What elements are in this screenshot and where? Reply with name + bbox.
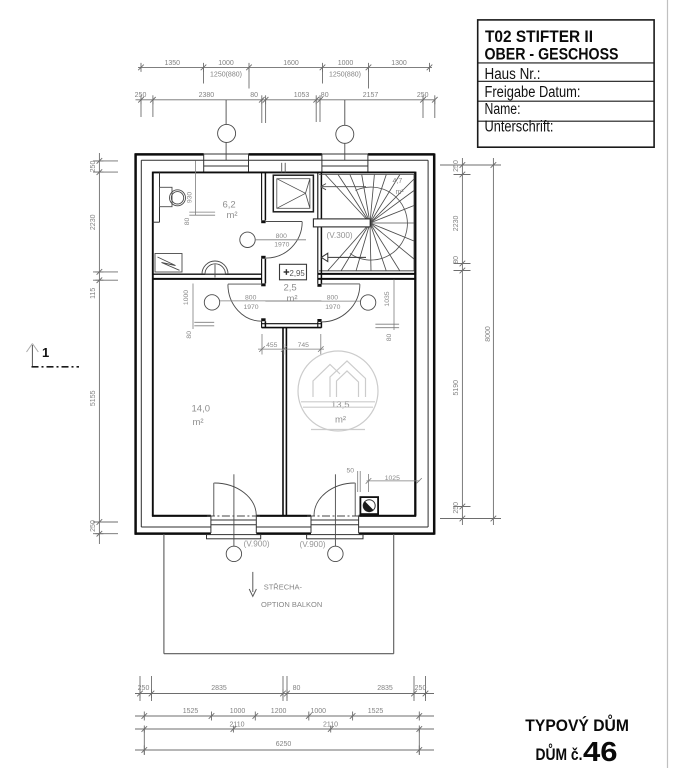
svg-text:1600: 1600 bbox=[283, 60, 299, 67]
svg-text:(V.900): (V.900) bbox=[244, 540, 270, 549]
svg-text:80: 80 bbox=[184, 218, 191, 226]
svg-text:1: 1 bbox=[42, 345, 49, 360]
svg-text:OPTION BALKON: OPTION BALKON bbox=[261, 600, 322, 609]
svg-text:(V.900): (V.900) bbox=[300, 540, 326, 549]
svg-text:1000: 1000 bbox=[230, 708, 246, 715]
svg-text:1970: 1970 bbox=[274, 242, 289, 249]
svg-text:115: 115 bbox=[90, 288, 97, 299]
svg-text:5155: 5155 bbox=[90, 390, 97, 406]
svg-text:1035: 1035 bbox=[384, 291, 391, 306]
svg-text:800: 800 bbox=[245, 295, 257, 302]
svg-text:1300: 1300 bbox=[391, 60, 407, 67]
svg-text:1000: 1000 bbox=[311, 708, 327, 715]
svg-text:80: 80 bbox=[186, 331, 193, 339]
svg-text:250: 250 bbox=[90, 161, 97, 173]
svg-text:80: 80 bbox=[321, 92, 329, 99]
svg-text:455: 455 bbox=[266, 342, 278, 349]
svg-text:1970: 1970 bbox=[325, 304, 340, 311]
svg-text:Haus Nr.:: Haus Nr.: bbox=[485, 66, 541, 83]
svg-text:2835: 2835 bbox=[377, 685, 393, 692]
svg-text:5190: 5190 bbox=[453, 380, 460, 396]
svg-text:800: 800 bbox=[276, 233, 288, 240]
svg-text:46: 46 bbox=[583, 736, 618, 767]
svg-text:1053: 1053 bbox=[294, 92, 310, 99]
svg-text:2835: 2835 bbox=[211, 685, 227, 692]
svg-text:250: 250 bbox=[90, 520, 97, 532]
svg-text:DŮM č.: DŮM č. bbox=[536, 744, 583, 764]
svg-text:OBER - GESCHOSS: OBER - GESCHOSS bbox=[485, 45, 619, 64]
svg-text:m²: m² bbox=[227, 210, 238, 221]
svg-text:6,2: 6,2 bbox=[223, 200, 236, 211]
svg-text:745: 745 bbox=[298, 342, 310, 349]
svg-text:1000: 1000 bbox=[183, 290, 190, 305]
svg-text:1200: 1200 bbox=[271, 708, 287, 715]
svg-text:2230: 2230 bbox=[90, 214, 97, 230]
svg-text:m²: m² bbox=[193, 417, 204, 428]
svg-text:1000: 1000 bbox=[218, 60, 234, 67]
svg-text:STŘECHA-: STŘECHA- bbox=[264, 583, 303, 592]
svg-text:2,5: 2,5 bbox=[284, 283, 297, 294]
svg-text:250: 250 bbox=[453, 160, 460, 172]
svg-text:2157: 2157 bbox=[363, 92, 379, 99]
svg-text:Unterschrift:: Unterschrift: bbox=[485, 119, 554, 136]
svg-text:1525: 1525 bbox=[183, 708, 199, 715]
svg-text:(V.300): (V.300) bbox=[327, 231, 353, 240]
svg-text:250: 250 bbox=[453, 502, 460, 514]
svg-text:1350: 1350 bbox=[165, 60, 181, 67]
svg-text:250: 250 bbox=[417, 92, 429, 99]
svg-text:T02 STIFTER II: T02 STIFTER II bbox=[485, 27, 593, 46]
svg-text:14,0: 14,0 bbox=[192, 404, 211, 415]
svg-text:800: 800 bbox=[327, 295, 339, 302]
svg-text:m²: m² bbox=[335, 415, 346, 426]
svg-text:1250(880): 1250(880) bbox=[329, 72, 361, 79]
svg-text:1000: 1000 bbox=[338, 60, 354, 67]
svg-text:1025: 1025 bbox=[385, 475, 400, 482]
svg-text:80: 80 bbox=[386, 334, 393, 342]
svg-text:1970: 1970 bbox=[243, 304, 258, 311]
svg-text:1525: 1525 bbox=[368, 708, 384, 715]
svg-text:2230: 2230 bbox=[453, 216, 460, 232]
svg-text:50: 50 bbox=[347, 468, 355, 475]
svg-text:13,5: 13,5 bbox=[331, 400, 350, 411]
svg-text:8000: 8000 bbox=[485, 326, 492, 342]
svg-text:TYPOVÝ DŮM: TYPOVÝ DŮM bbox=[525, 715, 629, 735]
svg-text:6250: 6250 bbox=[276, 741, 292, 748]
svg-text:80: 80 bbox=[453, 256, 460, 264]
svg-text:930: 930 bbox=[187, 192, 194, 204]
svg-text:4,7: 4,7 bbox=[393, 178, 403, 185]
svg-text:2,95: 2,95 bbox=[290, 269, 306, 278]
svg-text:Name:: Name: bbox=[485, 101, 521, 118]
svg-text:80: 80 bbox=[293, 685, 301, 692]
svg-text:250: 250 bbox=[415, 685, 427, 692]
svg-text:80: 80 bbox=[250, 92, 258, 99]
svg-text:250: 250 bbox=[135, 92, 147, 99]
svg-text:m²: m² bbox=[287, 294, 298, 305]
svg-text:Freigabe Datum:: Freigabe Datum: bbox=[485, 84, 581, 101]
svg-text:2110: 2110 bbox=[229, 722, 244, 729]
svg-text:1250(880): 1250(880) bbox=[210, 72, 242, 79]
svg-text:m²: m² bbox=[396, 189, 405, 196]
svg-text:2380: 2380 bbox=[199, 92, 215, 99]
svg-text:250: 250 bbox=[138, 685, 150, 692]
